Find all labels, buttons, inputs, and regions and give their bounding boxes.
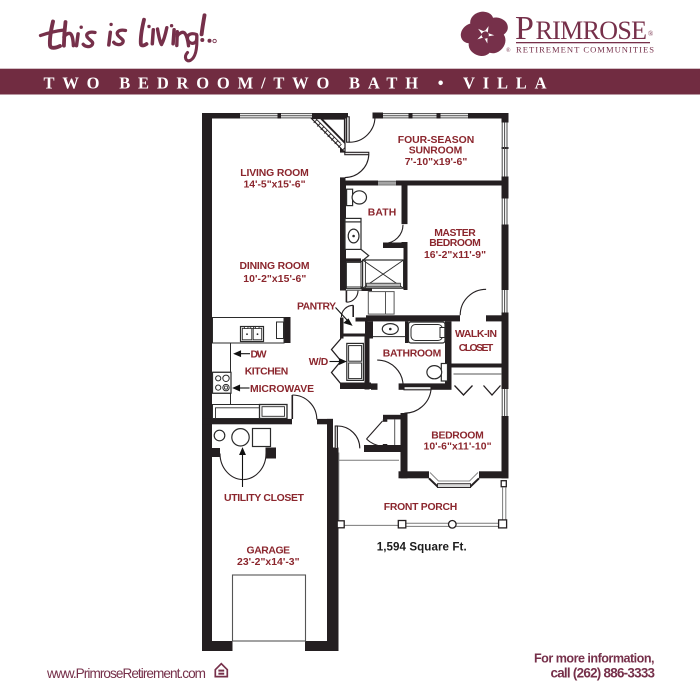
- svg-text:®: ®: [648, 30, 654, 38]
- svg-text:10'-6"x11'-10": 10'-6"x11'-10": [424, 442, 492, 453]
- svg-text:7'-10"x19'-6": 7'-10"x19'-6": [405, 157, 468, 168]
- svg-text:BEDROOM: BEDROOM: [429, 238, 481, 249]
- svg-text:MICROWAVE: MICROWAVE: [250, 384, 314, 395]
- svg-text:P: P: [515, 10, 534, 47]
- svg-text:SUNROOM: SUNROOM: [409, 145, 463, 156]
- svg-text:10'-2"x15'-6": 10'-2"x15'-6": [243, 274, 306, 285]
- svg-text:GARAGE: GARAGE: [247, 546, 291, 557]
- svg-text:16'-2"x11'-9": 16'-2"x11'-9": [424, 250, 486, 261]
- svg-text:14'-5"x15'-6": 14'-5"x15'-6": [244, 179, 306, 190]
- svg-text:W/D: W/D: [309, 357, 329, 368]
- svg-text:BATH: BATH: [368, 207, 397, 218]
- svg-text:For more information,: For more information,: [534, 651, 655, 665]
- svg-text:23'-2"x14'-3": 23'-2"x14'-3": [237, 557, 300, 568]
- svg-text:BATHROOM: BATHROOM: [383, 349, 442, 360]
- svg-text:FOUR-SEASON: FOUR-SEASON: [398, 135, 475, 146]
- svg-text:KITCHEN: KITCHEN: [245, 366, 289, 377]
- svg-text:DW: DW: [251, 350, 267, 361]
- svg-text:1,594 Square Ft.: 1,594 Square Ft.: [377, 540, 467, 553]
- svg-text:®: ®: [506, 47, 511, 54]
- svg-text:FRONT PORCH: FRONT PORCH: [384, 502, 458, 513]
- svg-text:CLOSET: CLOSET: [459, 343, 494, 354]
- svg-text:RETIREMENT COMMUNITIES: RETIREMENT COMMUNITIES: [516, 45, 654, 55]
- svg-text:LIVING ROOM: LIVING ROOM: [240, 168, 309, 179]
- svg-text:www.PrimroseRetirement.com: www.PrimroseRetirement.com: [46, 666, 206, 681]
- svg-text:DINING ROOM: DINING ROOM: [240, 261, 310, 272]
- svg-text:BEDROOM: BEDROOM: [431, 430, 484, 441]
- svg-text:PANTRY: PANTRY: [297, 301, 336, 312]
- svg-text:call (262) 886-3333: call (262) 886-3333: [551, 665, 656, 680]
- svg-text:WALK-IN: WALK-IN: [455, 329, 497, 340]
- svg-text:TWO BEDROOM/TWO BATH • VILLA: TWO BEDROOM/TWO BATH • VILLA: [44, 74, 547, 93]
- svg-text:UTILITY CLOSET: UTILITY CLOSET: [224, 493, 305, 504]
- svg-text:RIMROSE: RIMROSE: [536, 16, 648, 45]
